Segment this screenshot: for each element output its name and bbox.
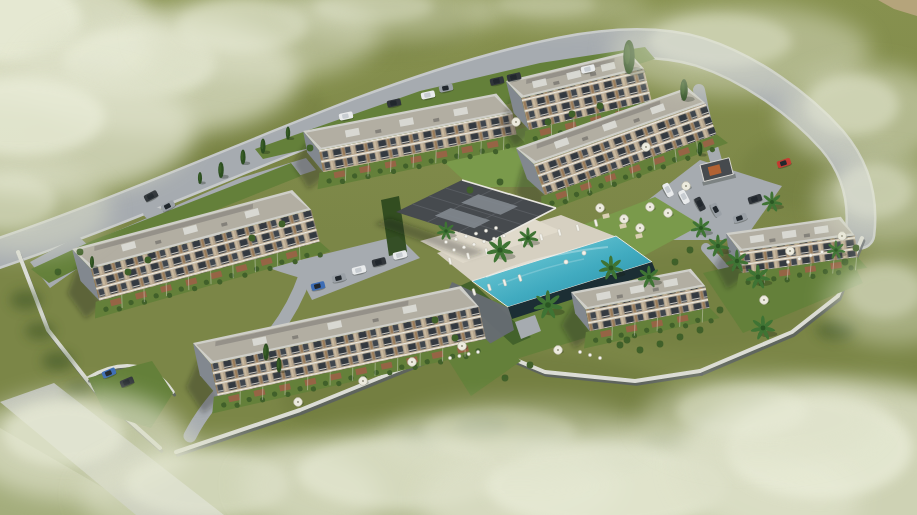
outdoor-table	[598, 356, 601, 359]
cypress-highlight	[261, 140, 263, 149]
shrub-highlight	[527, 362, 530, 365]
umbrella-pole	[461, 345, 463, 347]
outdoor-table	[588, 353, 591, 356]
palm-crown	[647, 275, 651, 279]
umbrella-pole	[649, 206, 651, 208]
outdoor-table	[474, 232, 477, 235]
cloud-core	[649, 14, 792, 68]
shrub-highlight	[697, 327, 700, 330]
shrub-highlight	[497, 179, 500, 182]
palm-crown	[756, 275, 761, 280]
shrub-highlight	[77, 249, 80, 252]
outdoor-table	[448, 356, 451, 359]
outdoor-table	[786, 260, 789, 263]
outdoor-table	[798, 257, 801, 260]
umbrella-pole	[362, 380, 364, 382]
outdoor-table	[467, 352, 470, 355]
umbrella-pole	[599, 207, 601, 209]
shrub-highlight	[842, 259, 845, 262]
umbrella-pole	[685, 185, 687, 187]
shrub-highlight	[125, 269, 128, 272]
palm-crown	[770, 200, 774, 204]
shrub-highlight	[307, 145, 310, 148]
outdoor-table	[578, 350, 581, 353]
tree-shadow-clump	[42, 351, 74, 371]
cypress-highlight	[90, 257, 92, 264]
umbrella-pole	[789, 250, 791, 252]
cypress-highlight	[219, 164, 222, 174]
cypress-highlight	[286, 128, 288, 136]
outdoor-table	[476, 350, 479, 353]
shrub-highlight	[502, 375, 505, 378]
palm-crown	[609, 266, 614, 271]
pool-float	[582, 251, 586, 255]
shrub-highlight	[249, 235, 252, 238]
shrub-highlight	[545, 119, 548, 122]
palm-crown	[497, 247, 502, 252]
shrub-highlight	[624, 337, 627, 340]
palm-crown	[699, 226, 703, 230]
palm-crown	[716, 244, 720, 248]
umbrella-pole	[297, 401, 299, 403]
palm-crown	[545, 302, 551, 308]
cypress-highlight	[198, 173, 200, 180]
outdoor-table	[464, 235, 467, 238]
aerial-site-render	[0, 0, 917, 515]
outdoor-table	[484, 229, 487, 232]
outdoor-table	[494, 226, 497, 229]
umbrella-pole	[667, 212, 669, 214]
cloud-core	[806, 75, 900, 135]
palm-crown	[834, 248, 838, 252]
umbrella-pole	[557, 349, 559, 351]
outdoor-table	[472, 243, 475, 246]
shrub-highlight	[432, 317, 435, 320]
outdoor-table	[444, 240, 447, 243]
palm-crown	[761, 326, 766, 331]
shrub-highlight	[657, 341, 660, 344]
shrub-highlight	[452, 335, 455, 338]
umbrella-pole	[645, 146, 647, 148]
shrub-highlight	[597, 103, 600, 106]
outdoor-table	[452, 248, 455, 251]
cypress-highlight	[277, 359, 279, 368]
shrub-highlight	[279, 221, 282, 224]
outdoor-table	[454, 238, 457, 241]
shrub-highlight	[853, 245, 856, 248]
umbrella-pole	[623, 218, 625, 220]
umbrella-pole	[515, 121, 517, 123]
shrub-highlight	[569, 111, 572, 114]
outdoor-table	[458, 354, 461, 357]
shrub-highlight	[145, 257, 148, 260]
shrub-highlight	[467, 187, 470, 190]
residential-complex-render	[0, 0, 917, 515]
outdoor-table	[809, 254, 812, 257]
cypress-highlight	[698, 144, 700, 152]
outdoor-table	[482, 240, 485, 243]
cloud-core	[422, 408, 576, 456]
tree-shadow-clump	[10, 290, 42, 310]
outdoor-table	[820, 250, 823, 253]
cypress-highlight	[264, 346, 267, 356]
shrub-highlight	[672, 259, 675, 262]
shrub-highlight	[687, 247, 690, 250]
outdoor-table	[502, 234, 505, 237]
shrub-highlight	[617, 342, 620, 345]
palm-crown	[735, 259, 739, 263]
outdoor-table	[462, 246, 465, 249]
shrub-highlight	[717, 307, 720, 310]
shrub-highlight	[637, 347, 640, 350]
tree-shadow-clump	[25, 322, 55, 340]
umbrella-pole	[763, 299, 765, 301]
umbrella-pole	[411, 361, 413, 363]
outdoor-table	[492, 237, 495, 240]
cloud-core	[3, 401, 124, 467]
shrub-highlight	[55, 269, 58, 272]
pool-float	[564, 260, 568, 264]
cloud-core	[836, 164, 913, 218]
palm-crown	[526, 236, 530, 240]
palm-crown	[444, 229, 448, 233]
umbrella-pole	[639, 227, 641, 229]
cypress-highlight	[241, 151, 243, 160]
shrub-highlight	[677, 334, 680, 337]
cloud-core	[676, 384, 808, 438]
